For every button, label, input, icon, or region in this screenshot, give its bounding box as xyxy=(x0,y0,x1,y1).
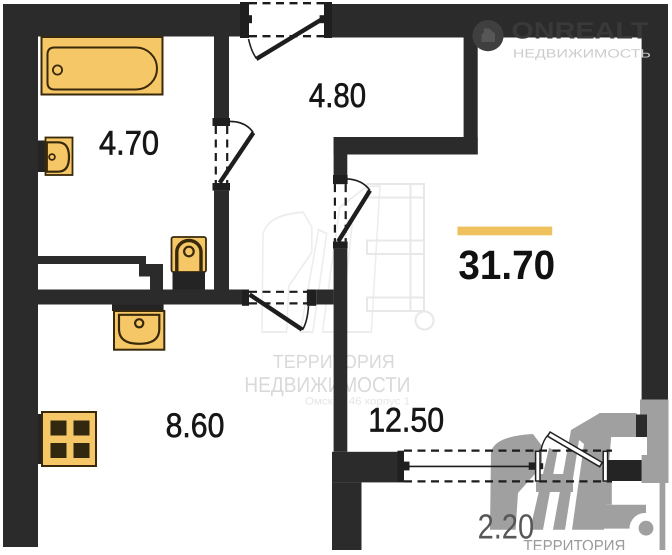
svg-text:ONREALT: ONREALT xyxy=(511,18,649,44)
svg-text:4.70: 4.70 xyxy=(99,125,159,163)
svg-text:12.50: 12.50 xyxy=(368,402,444,440)
svg-text:31.70: 31.70 xyxy=(458,242,555,288)
svg-text:НЕДВИЖИМОСТЬ: НЕДВИЖИМОСТЬ xyxy=(513,47,651,61)
svg-text:4.80: 4.80 xyxy=(309,77,366,115)
svg-text:8.60: 8.60 xyxy=(166,407,225,445)
svg-text:ТЕРРИТОРИЯ: ТЕРРИТОРИЯ xyxy=(523,538,625,550)
svg-text:НЕДВИЖИМОСТИ: НЕДВИЖИМОСТИ xyxy=(244,373,410,397)
